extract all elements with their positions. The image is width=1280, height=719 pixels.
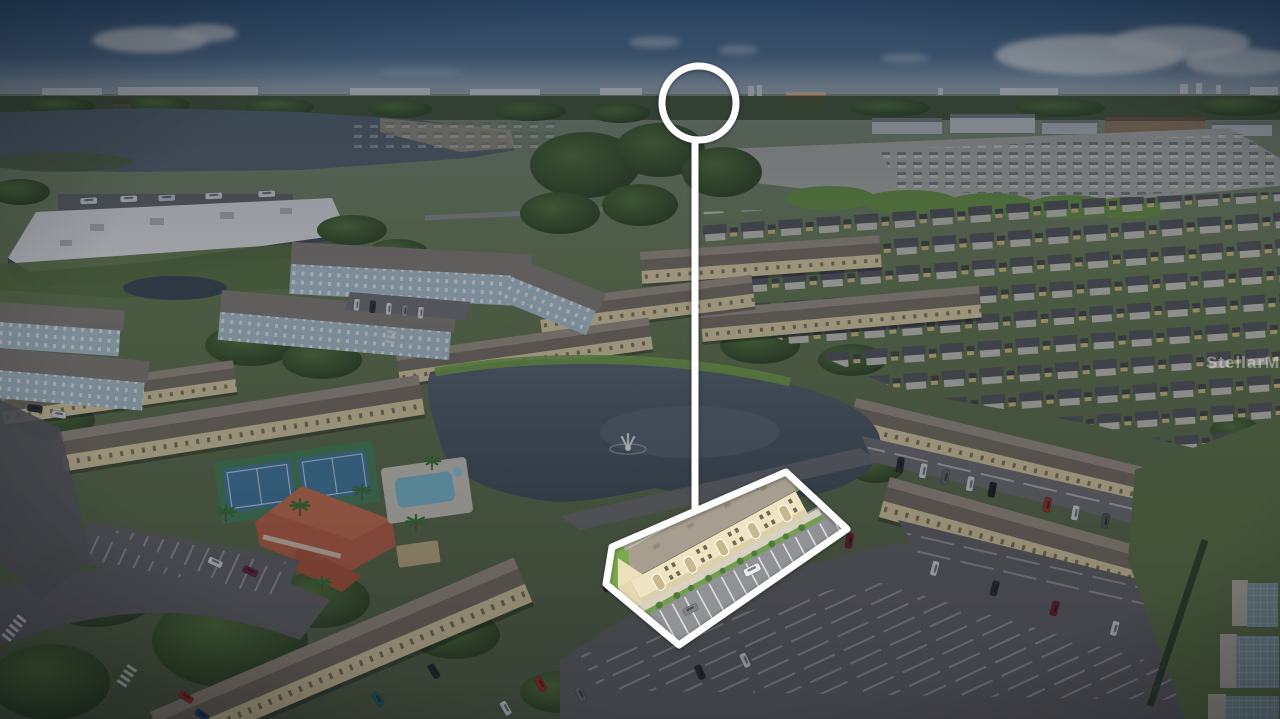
aerial-scene: StellarMLS [0,0,1280,719]
watermark: StellarMLS [1206,353,1280,372]
aerial-photo: StellarMLS [0,0,1280,719]
